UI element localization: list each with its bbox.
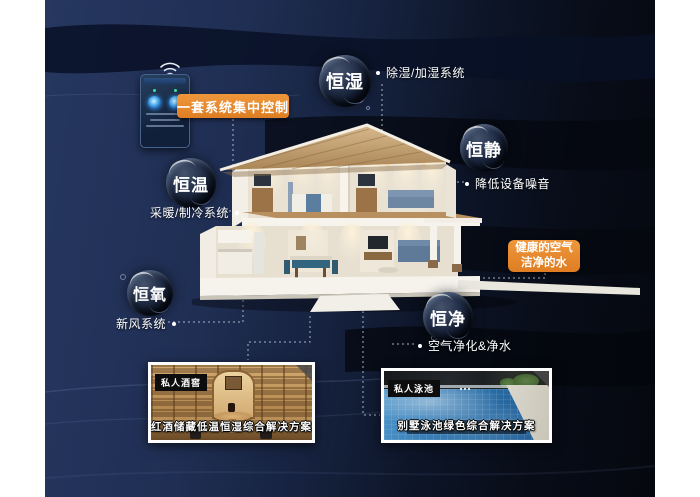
feature-bubble-humidity: 恒湿 <box>319 55 371 107</box>
feature-desc-quiet: 降低设备噪音 <box>465 175 550 192</box>
temperature-knob <box>148 96 161 109</box>
house-illustration <box>192 112 647 357</box>
connector-dot <box>418 344 422 348</box>
wine-cellar-photo: 私人酒窖 红酒储藏低温恒湿综合解决方案 <box>151 365 312 440</box>
feature-desc-text: 采暖/制冷系统 <box>150 204 229 221</box>
bubble-label: 恒净 <box>430 305 466 330</box>
connector-dot <box>172 322 176 326</box>
poster-stage: 一套系统集中控制 健康的空气 洁净的水 恒湿 恒静 恒温 恒氧 恒净 除湿/加湿… <box>0 0 700 497</box>
feature-desc-purity: 空气净化&净水 <box>418 337 512 354</box>
feature-bubble-oxygen: 恒氧 <box>127 270 173 316</box>
highlight-line2: 洁净的水 <box>521 256 567 271</box>
pool-tag: 私人泳池 <box>388 380 440 397</box>
pool-ladder <box>460 388 470 391</box>
bubble-label: 恒静 <box>466 136 502 161</box>
status-led <box>174 89 177 92</box>
bubble-label: 恒温 <box>173 171 209 196</box>
highlight-line1: 健康的空气 <box>515 241 573 256</box>
wine-cellar-card: 私人酒窖 红酒储藏低温恒湿综合解决方案 <box>148 362 315 443</box>
bubble-label: 恒氧 <box>133 281 167 305</box>
connector-dot <box>376 71 380 75</box>
pool-photo: 私人泳池 别墅泳池绿色综合解决方案 <box>384 371 549 440</box>
wine-bottle <box>228 403 234 413</box>
feature-desc-temperature: 采暖/制冷系统 <box>150 204 239 221</box>
feature-desc-text: 空气净化&净水 <box>428 337 512 354</box>
wall-frame <box>225 376 241 390</box>
connector-dot <box>465 182 469 186</box>
panel-header <box>144 78 186 84</box>
bubble-label: 恒湿 <box>326 68 364 94</box>
feature-desc-text: 新风系统 <box>116 315 166 332</box>
wine-cellar-caption: 红酒储藏低温恒湿综合解决方案 <box>151 419 312 434</box>
feature-desc-oxygen: 新风系统 <box>116 315 176 332</box>
feature-bubble-temperature: 恒温 <box>166 158 216 208</box>
feature-bubble-purity: 恒净 <box>423 292 473 342</box>
feature-desc-humidity: 除湿/加湿系统 <box>376 64 465 81</box>
feature-desc-text: 除湿/加湿系统 <box>386 64 465 81</box>
central-control-text: 一套系统集中控制 <box>177 97 289 116</box>
connector-dot <box>235 211 239 215</box>
central-control-label: 一套系统集中控制 <box>177 94 289 118</box>
pool-card: 私人泳池 别墅泳池绿色综合解决方案 <box>381 368 552 443</box>
panel-row <box>146 125 184 127</box>
healthy-air-water-box: 健康的空气 洁净的水 <box>508 240 580 272</box>
pool-caption: 别墅泳池绿色综合解决方案 <box>384 418 549 433</box>
wine-cellar-tag: 私人酒窖 <box>155 374 207 391</box>
status-led <box>153 89 156 92</box>
feature-desc-text: 降低设备噪音 <box>475 175 550 192</box>
feature-bubble-quiet: 恒静 <box>460 124 508 172</box>
panel-row <box>150 119 180 121</box>
